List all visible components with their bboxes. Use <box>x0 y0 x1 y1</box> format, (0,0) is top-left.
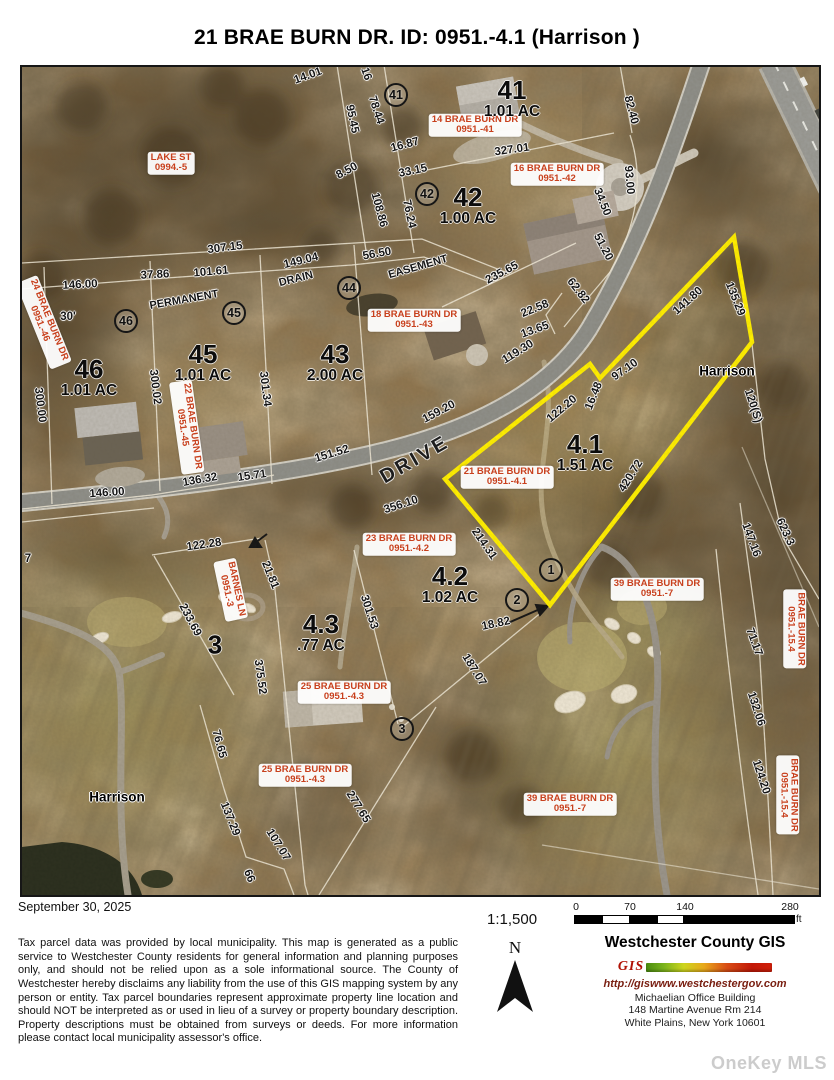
gis-logo-text: GIS <box>618 959 644 975</box>
parcel-address-label: 39 BRAE BURN DR 0951.-7 <box>524 793 617 816</box>
page-title: 21 BRAE BURN DR. ID: 0951.-4.1 (Harrison… <box>0 26 834 50</box>
lot-number-label: 4.1 1.51 AC <box>557 431 613 473</box>
lot-number-label: 41 1.01 AC <box>484 77 540 119</box>
reference-point-marker: 46 <box>114 309 138 333</box>
reference-point-marker: 42 <box>415 182 439 206</box>
town-label: Harrison <box>89 790 145 805</box>
gis-logo-gradient <box>646 963 772 972</box>
parcel-address-label: 21 BRAE BURN DR 0951.-4.1 <box>461 466 554 489</box>
scale-ratio: 1:1,500 <box>487 911 537 928</box>
north-label: N <box>494 938 536 958</box>
dimension-label: 37.86 <box>140 268 169 281</box>
parcel-address-label: 39 BRAE BURN DR 0951.-7 <box>611 578 704 601</box>
scale-unit: ft <box>796 914 802 925</box>
lot-number-label: 3 <box>208 632 222 659</box>
gis-logo: GIS <box>575 959 815 975</box>
lot-number-label: 4.2 1.02 AC <box>422 563 478 605</box>
gis-attribution: Westchester County GIS GIS http://giswww… <box>575 934 815 1029</box>
reference-point-marker: 44 <box>337 276 361 300</box>
parcel-address-label: BRAE BURN DR 0951.-15.4 <box>784 589 807 668</box>
reference-point-marker: 1 <box>539 558 563 582</box>
reference-point-marker: 2 <box>505 588 529 612</box>
scale-tick-label: 70 <box>624 901 636 913</box>
reference-point-marker: 41 <box>384 83 408 107</box>
dimension-label: 30' <box>60 311 76 323</box>
gis-org-name: Westchester County GIS <box>575 934 815 952</box>
reference-point-marker: 45 <box>222 301 246 325</box>
scale-bar-segments <box>574 915 795 924</box>
gis-address-line: 148 Martine Avenue Rm 214 <box>575 1004 815 1016</box>
lot-number-label: 45 1.01 AC <box>175 341 231 383</box>
reference-point-marker: 3 <box>390 717 414 741</box>
parcel-address-label: BRAE BURN DR 0951.-15.4 <box>777 755 800 834</box>
parcel-address-label: 16 BRAE BURN DR 0951.-42 <box>511 163 604 186</box>
parcel-address-label: 25 BRAE BURN DR 0951.-4.3 <box>298 681 391 704</box>
lot-number-label: 46 1.01 AC <box>61 356 117 398</box>
gis-address: Michaelian Office Building148 Martine Av… <box>575 992 815 1029</box>
watermark: OneKey MLS <box>711 1053 827 1074</box>
scale-tick-label: 280 <box>781 901 799 913</box>
dimension-label: 7 <box>25 553 31 565</box>
parcel-address-label: LAKE ST 0994.-5 <box>148 152 195 175</box>
parcel-map: 14.011678.4495.4516.878.5033.15108.8676.… <box>20 65 821 897</box>
map-date: September 30, 2025 <box>18 900 131 914</box>
parcel-address-label: 25 BRAE BURN DR 0951.-4.3 <box>259 764 352 787</box>
parcel-address-label: 23 BRAE BURN DR 0951.-4.2 <box>363 533 456 556</box>
lot-number-label: 4.3 .77 AC <box>297 611 345 653</box>
dimension-label: 93.00 <box>622 165 636 195</box>
disclaimer-text: Tax parcel data was provided by local mu… <box>18 937 458 1046</box>
gis-address-line: Michaelian Office Building <box>575 992 815 1004</box>
scale-tick-label: 0 <box>573 901 579 913</box>
lot-number-label: 42 1.00 AC <box>440 184 496 226</box>
lot-number-label: 43 2.00 AC <box>307 341 363 383</box>
dimension-label: 146.00 <box>89 486 125 500</box>
scale-bar: 070140280 ft <box>574 901 804 927</box>
scale-tick-label: 140 <box>676 901 694 913</box>
parcel-address-label: 18 BRAE BURN DR 0951.-43 <box>368 309 461 332</box>
north-indicator: N <box>494 938 536 1019</box>
north-arrow-icon <box>497 960 533 1014</box>
dimension-label: 146.00 <box>62 278 98 292</box>
gis-address-line: White Plains, New York 10601 <box>575 1017 815 1029</box>
gis-url: http://giswww.westchestergov.com <box>575 978 815 990</box>
town-label: Harrison <box>699 364 755 379</box>
